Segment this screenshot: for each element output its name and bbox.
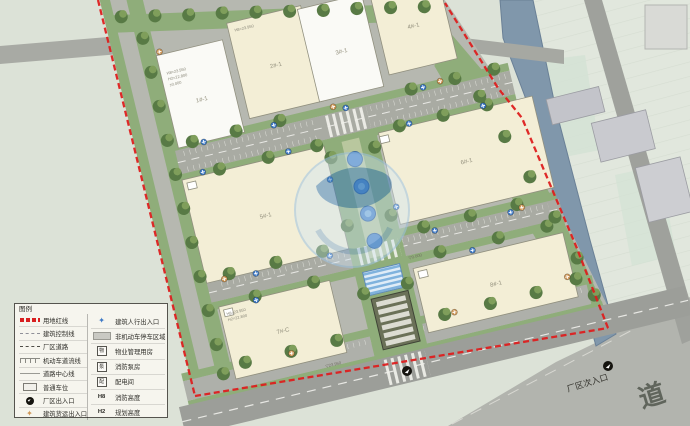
bicycle-parking-symbol: [93, 332, 111, 340]
legend-label: 非机动车停车区域: [115, 332, 165, 341]
legend-label: 厂区出入口: [43, 396, 74, 405]
legend-right-column: ✦ 建筑人行出入口 非机动车停车区域 物 物业管理用房 泵 消防泵房 配 配电间…: [87, 314, 165, 420]
site-plan-screenshot: 1#-1 2#-1 3#-1 4#-1 5#-1 6#-1 7#-C 8#-1 …: [0, 0, 690, 426]
gate-icon: [26, 397, 34, 405]
red-boundary-line-symbol: [20, 318, 40, 322]
legend-item: 道路中心线: [19, 368, 87, 381]
substation-symbol: 配: [97, 377, 107, 387]
legend-item: 机动车道流线: [19, 354, 87, 367]
legend-label: 建筑人行出入口: [115, 317, 159, 326]
control-line-symbol: [20, 333, 40, 334]
legend-label: 建筑控制线: [43, 329, 74, 338]
legend-item: ✦ 建筑货运出入口: [19, 408, 87, 420]
centerline-symbol: [20, 373, 40, 374]
legend-label: 用地红线: [43, 316, 68, 325]
existing-building-ne: [645, 5, 687, 49]
fire-height-token: H8: [98, 394, 105, 400]
legend-label: 机动车道流线: [43, 356, 81, 365]
legend-item: 用地红线: [19, 314, 87, 327]
legend-left-column: 用地红线 建筑控制线 厂区道路 机动车道流线 道路中心线 普通车位: [19, 314, 87, 420]
site-road-symbol: [20, 346, 40, 347]
legend-item: 配 配电间: [91, 375, 165, 390]
legend-item: H2 规划高度: [91, 405, 165, 419]
legend-label: 建筑货运出入口: [43, 409, 87, 418]
legend-label: 消防泵房: [115, 362, 140, 371]
legend-label: 规划高度: [115, 408, 140, 417]
planning-height-token: H2: [98, 409, 105, 415]
property-room-symbol: 物: [97, 346, 107, 356]
legend-item: 普通车位: [19, 381, 87, 394]
legend-item: 物 物业管理用房: [91, 344, 165, 359]
legend-item: 厂区出入口: [19, 394, 87, 407]
legend-label: 物业管理用房: [115, 347, 153, 356]
legend-label: 配电间: [115, 377, 134, 386]
legend-item: 建筑控制线: [19, 327, 87, 340]
secondary-entrance-icon: [603, 361, 613, 371]
legend-label: 道路中心线: [43, 369, 74, 378]
legend-item: H8 消防高度: [91, 390, 165, 405]
legend-item: 非机动车停车区域: [91, 329, 165, 344]
legend-item: ✦ 建筑人行出入口: [91, 314, 165, 329]
freight-entrance-icon: ✦: [26, 410, 33, 418]
legend-item: 泵 消防泵房: [91, 360, 165, 375]
parking-stall-symbol: [23, 383, 37, 391]
legend-title: 图例: [19, 306, 164, 314]
legend-label: 消防高度: [115, 393, 140, 402]
legend-item: 厂区道路: [19, 341, 87, 354]
vehicle-lane-symbol: [20, 358, 40, 363]
fire-pump-room-symbol: 泵: [97, 362, 107, 372]
legend-label: 厂区道路: [43, 342, 68, 351]
legend-label: 普通车位: [43, 383, 68, 392]
legend-box: 图例 用地红线 建筑控制线 厂区道路 机动车道流线 道路中心线: [14, 303, 168, 418]
pedestrian-entrance-icon: ✦: [98, 317, 105, 325]
watermark-logo: [295, 153, 409, 267]
main-entrance-icon: [402, 366, 412, 376]
